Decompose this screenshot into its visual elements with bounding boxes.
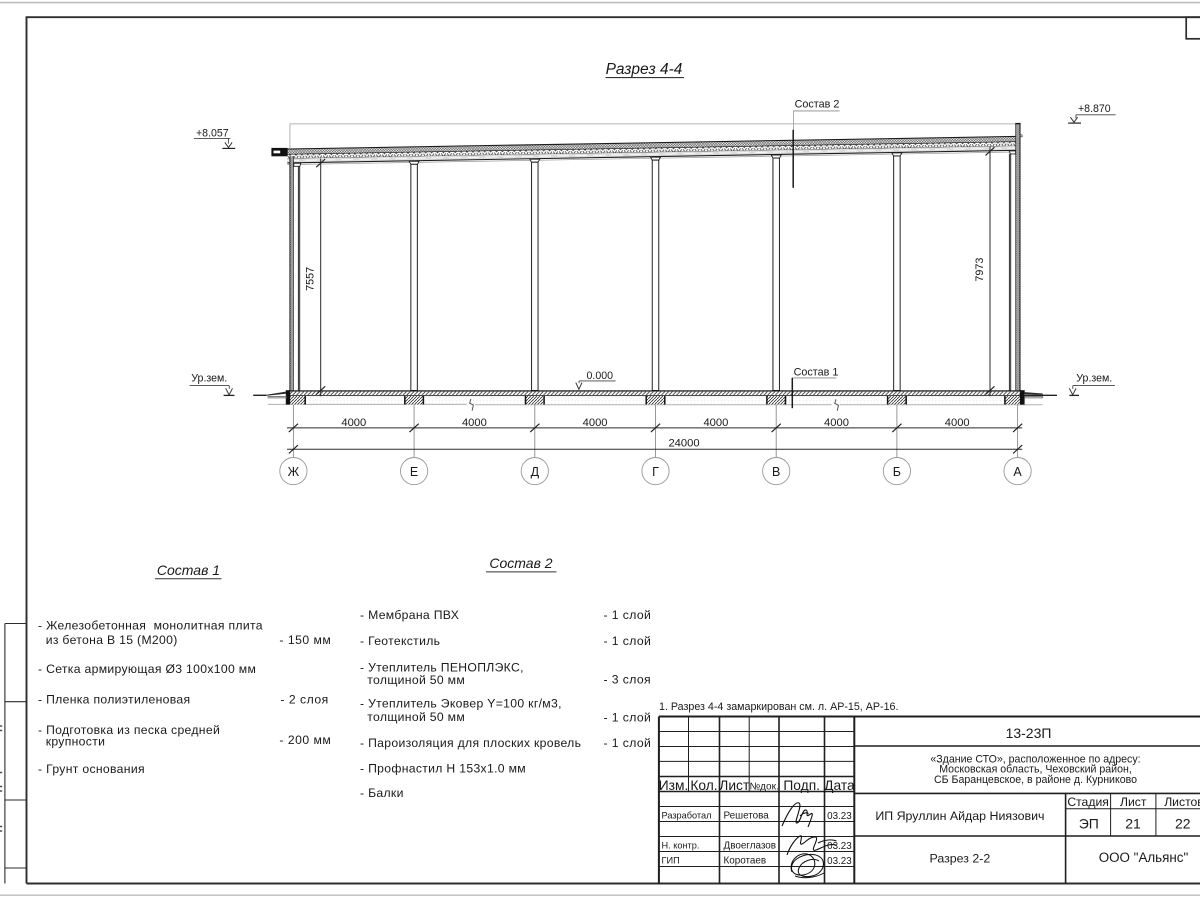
svg-text:ЭП: ЭП (1079, 816, 1099, 832)
svg-text:4000: 4000 (703, 417, 728, 429)
svg-text:- Профнастил Н 153х1.0 мм: - Профнастил Н 153х1.0 мм (360, 761, 526, 775)
svg-text:13-23П: 13-23П (1006, 725, 1052, 741)
svg-text:03.23: 03.23 (827, 856, 852, 867)
svg-text:22: 22 (1175, 816, 1191, 832)
svg-text:- Пленка полиэтиленовая: - Пленка полиэтиленовая (38, 692, 190, 706)
svg-text:- Сетка армирующая Ø3 100х100: - Сетка армирующая Ø3 100х100 мм (38, 662, 256, 676)
svg-text:Ж: Ж (288, 465, 300, 479)
svg-text:Лист: Лист (1120, 795, 1147, 809)
svg-text:Д: Д (531, 465, 540, 479)
svg-text:из бетона В 15 (М200): из бетона В 15 (М200) (46, 633, 178, 647)
svg-text:Стадия: Стадия (1067, 795, 1109, 809)
svg-text:- Железобетонная монолитная п: - Железобетонная монолитная плита (38, 618, 263, 632)
svg-text:4000: 4000 (462, 417, 487, 429)
svg-text:Изм.: Изм. (659, 778, 689, 793)
svg-text:- 150 мм: - 150 мм (279, 633, 331, 647)
svg-text:- 3 слоя: - 3 слоя (604, 672, 652, 686)
svg-text:Кол.: Кол. (690, 778, 717, 793)
svg-text:Г: Г (652, 465, 659, 479)
svg-text:крупности: крупности (46, 735, 106, 749)
svg-text:+8.870: +8.870 (1078, 103, 1111, 115)
svg-text:ГИП: ГИП (662, 855, 680, 865)
svg-text:Е: Е (410, 465, 418, 479)
svg-text:А: А (1013, 465, 1022, 479)
svg-text:Состав 2: Состав 2 (489, 555, 552, 571)
svg-text:Разрез 4-4: Разрез 4-4 (606, 61, 683, 78)
svg-text:Лист: Лист (719, 778, 750, 793)
svg-text:- 1 слой: - 1 слой (604, 736, 652, 750)
svg-text:4000: 4000 (945, 417, 970, 429)
svg-text:7973: 7973 (974, 258, 986, 282)
svg-text:4000: 4000 (341, 417, 366, 429)
svg-text:Двоеглазов: Двоеглазов (724, 840, 777, 851)
svg-text:- 1 слой: - 1 слой (604, 711, 652, 725)
svg-text:- 1 слой: - 1 слой (604, 608, 652, 622)
svg-text:1. Разрез 4-4 замаркирован см.: 1. Разрез 4-4 замаркирован см. л. АР-15,… (659, 701, 898, 713)
svg-text:Состав 1: Состав 1 (157, 562, 220, 578)
svg-text:24000: 24000 (668, 438, 699, 450)
svg-text:Состав 2: Состав 2 (795, 99, 840, 111)
svg-text:В: В (772, 465, 780, 479)
svg-text:СБ Баранцевское, в районе д. К: СБ Баранцевское, в районе д. Курниково (934, 774, 1137, 786)
svg-text:- Геотекстиль: - Геотекстиль (360, 634, 440, 648)
svg-text:Ур.зем.: Ур.зем. (1076, 372, 1112, 384)
svg-text:толщиной 50 мм: толщиной 50 мм (367, 673, 465, 687)
svg-text:- 1 слой: - 1 слой (604, 634, 652, 648)
svg-text:Решетова: Решетова (724, 810, 770, 821)
svg-text:Б: Б (893, 465, 901, 479)
svg-text:- Балки: - Балки (360, 786, 404, 800)
svg-text:толщиной 50 мм: толщиной 50 мм (367, 710, 465, 724)
svg-text:21: 21 (1125, 816, 1141, 832)
svg-text:Листов: Листов (1164, 795, 1200, 809)
svg-text:Разработал: Разработал (662, 810, 712, 820)
svg-text:4000: 4000 (583, 417, 608, 429)
svg-text:03.23: 03.23 (827, 841, 852, 852)
svg-text:Дата: Дата (824, 778, 855, 793)
svg-text:- Пароизоляция для плоских кро: - Пароизоляция для плоских кровель (360, 736, 581, 750)
svg-text:- 2 слоя: - 2 слоя (280, 692, 328, 706)
svg-text:Ур.зем.: Ур.зем. (191, 373, 227, 385)
svg-text:Н. контр.: Н. контр. (662, 840, 700, 850)
svg-text:Разрез 2-2: Разрез 2-2 (929, 852, 990, 866)
svg-text:03.23: 03.23 (827, 811, 852, 822)
svg-text:- Грунт основания: - Грунт основания (38, 762, 145, 776)
svg-text:ООО "Альянс": ООО "Альянс" (1099, 850, 1189, 865)
svg-text:- 200 мм: - 200 мм (279, 733, 331, 747)
svg-text:0.000: 0.000 (587, 370, 614, 382)
svg-text:№док.: №док. (749, 781, 778, 792)
svg-text:- Мембрана ПВХ: - Мембрана ПВХ (360, 608, 459, 622)
svg-text:7557: 7557 (305, 267, 317, 291)
svg-text:Состав 1: Состав 1 (794, 366, 839, 378)
svg-text:- Утеплитель Эковер Y=100 кг/м: - Утеплитель Эковер Y=100 кг/м3, (360, 697, 562, 711)
svg-text:Подп.: Подп. (783, 778, 820, 793)
svg-text:ИП Яруллин Айдар Ниязович: ИП Яруллин Айдар Ниязович (875, 809, 1044, 823)
svg-text:+8.057: +8.057 (196, 127, 229, 139)
svg-text:Коротаев: Коротаев (724, 855, 767, 866)
svg-text:4000: 4000 (824, 417, 849, 429)
